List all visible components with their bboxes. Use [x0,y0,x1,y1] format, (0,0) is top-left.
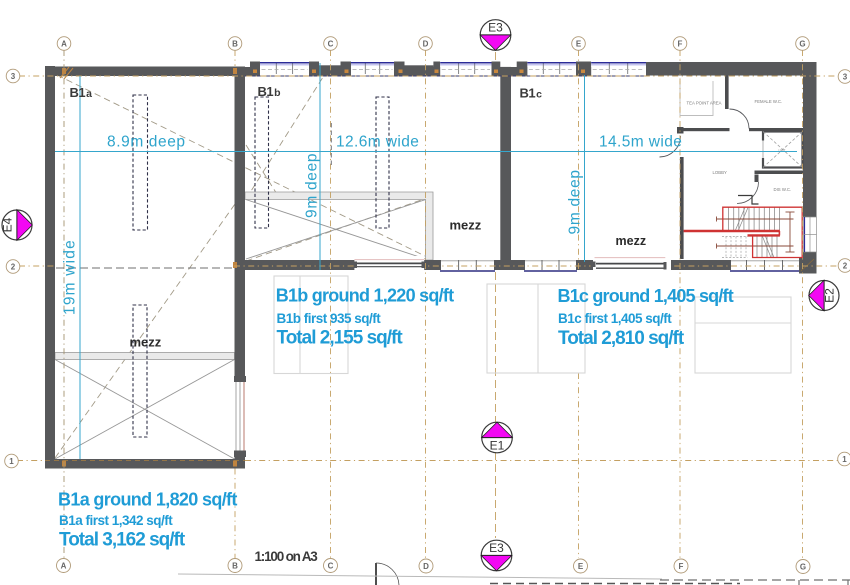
svg-text:E1: E1 [490,439,505,453]
svg-text:F: F [678,39,683,48]
svg-text:E3: E3 [488,21,503,35]
svg-text:C: C [328,562,334,571]
svg-text:mezz: mezz [130,335,162,350]
svg-text:B1c ground 1,405 sq/ft: B1c ground 1,405 sq/ft [558,286,734,306]
svg-text:B1a ground 1,820 sq/ft: B1a ground 1,820 sq/ft [58,490,237,510]
svg-text:9m deep: 9m deep [567,169,584,234]
svg-text:mezz: mezz [450,218,482,233]
svg-text:B1b ground 1,220 sq/ft: B1b ground 1,220 sq/ft [276,286,454,306]
svg-text:14.5m wide: 14.5m wide [599,134,682,151]
svg-text:1: 1 [9,457,14,466]
svg-text:F: F [679,562,684,571]
svg-text:B1c: B1c [520,86,543,101]
svg-text:E: E [576,39,582,48]
svg-text:3: 3 [843,72,848,81]
svg-text:C: C [328,39,334,48]
svg-text:mezz: mezz [616,234,647,248]
svg-text:E2: E2 [823,288,837,303]
svg-text:LOBBY: LOBBY [713,170,727,175]
svg-text:1: 1 [842,455,847,464]
svg-text:B1a: B1a [70,85,93,100]
svg-text:Total 2,155 sq/ft: Total 2,155 sq/ft [277,328,404,349]
svg-text:Total 3,162 sq/ft: Total 3,162 sq/ft [59,530,186,551]
svg-text:1:100 on A3: 1:100 on A3 [255,549,319,564]
svg-text:B1a first 1,342 sq/ft: B1a first 1,342 sq/ft [59,513,173,528]
svg-text:2: 2 [11,262,16,271]
svg-text:3: 3 [11,72,16,81]
svg-text:B: B [232,39,238,48]
svg-text:B: B [232,562,238,571]
svg-text:8.9m deep: 8.9m deep [107,134,186,151]
svg-text:19m wide: 19m wide [62,239,79,315]
svg-text:A: A [61,562,67,571]
svg-text:E3: E3 [489,541,504,555]
svg-text:B1b first 935 sq/ft: B1b first 935 sq/ft [277,311,382,326]
svg-text:E: E [578,562,584,571]
svg-text:A: A [61,39,67,48]
svg-text:TEA POINT AREA: TEA POINT AREA [687,100,722,105]
svg-text:D: D [423,562,429,571]
svg-text:G: G [800,563,806,572]
svg-text:FEMALE W.C.: FEMALE W.C. [755,99,783,104]
svg-text:2: 2 [843,261,848,270]
svg-text:Total 2,810 sq/ft: Total 2,810 sq/ft [558,328,685,349]
svg-text:B1b: B1b [258,84,281,99]
svg-text:B1c first 1,405 sq/ft: B1c first 1,405 sq/ft [558,311,672,326]
svg-text:DIS W.C.: DIS W.C. [774,187,792,192]
svg-text:E4: E4 [1,217,15,232]
svg-text:G: G [799,39,805,48]
svg-text:D: D [423,39,429,48]
svg-text:12.6m wide: 12.6m wide [336,134,419,151]
svg-text:9m deep: 9m deep [304,153,321,218]
